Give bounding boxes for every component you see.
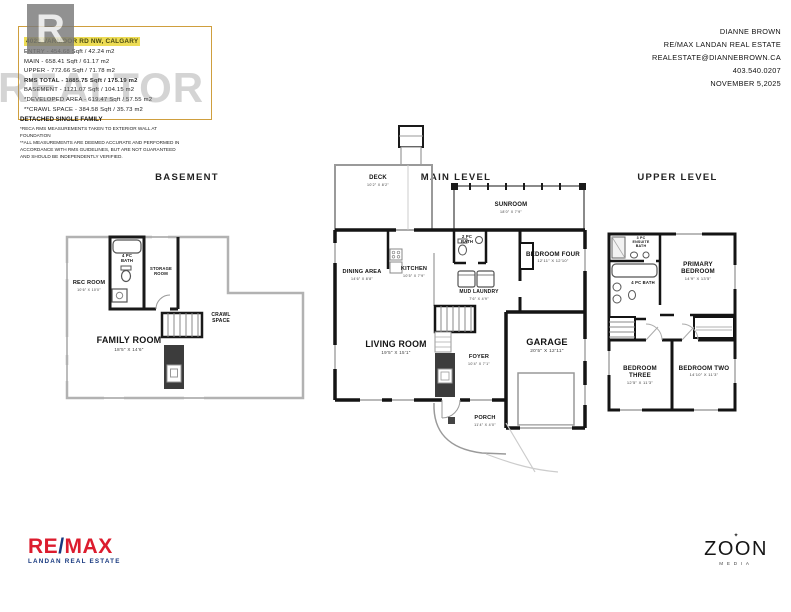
closet-icon	[694, 317, 734, 338]
zoon-wordmark: ZOON	[704, 539, 768, 560]
flyer-date: NOVEMBER 5,2025	[652, 77, 781, 90]
room-label-bedroom-three: BEDROOM THREE 12'5" X 11'3"	[612, 365, 668, 385]
room-label-sunroom: SUNROOM 18'0" X 7'9"	[478, 202, 544, 214]
room-label-family-room: FAMILY ROOM 18'5" X 14'6"	[74, 335, 184, 352]
stairs-icon	[162, 313, 202, 337]
disclaimer-2: **ALL MEASUREMENTS ARE DEEMED ACCURATE A…	[20, 140, 185, 160]
washer-icon	[458, 271, 475, 287]
porch-post	[448, 417, 455, 424]
bathtub-icon	[612, 264, 657, 277]
agent-email: REALESTATE@DIANNEBROWN.CA	[652, 51, 781, 64]
room-label-bedroom-two: BEDROOM TWO 14'10" X 11'3"	[676, 365, 732, 378]
room-label-primary-bedroom: PRIMARY BEDROOM 14'9" X 13'5"	[666, 261, 730, 281]
remax-brokerage-label: LANDAN REAL ESTATE	[28, 558, 121, 565]
room-label-rec-room: REC ROOM 10'6" X 10'0"	[64, 280, 114, 292]
stove-icon	[390, 249, 402, 260]
room-label-mud-laundry: MUD LAUNDRY 7'6" X 4'9"	[456, 290, 502, 301]
porch-outline	[434, 403, 506, 454]
toilet-icon	[631, 252, 638, 258]
zoon-sub-label: MEDIA	[704, 561, 768, 566]
room-label-garage: GARAGE 20'5" X 12'11"	[512, 337, 582, 355]
room-label-porch: PORCH 11'4" X 4'0"	[460, 415, 510, 427]
front-door-arc	[442, 400, 460, 418]
bathtub-icon	[113, 240, 141, 253]
realtor-watermark: REALTOR	[0, 64, 204, 112]
property-type: DETACHED SINGLE FAMILY	[20, 116, 103, 123]
room-label-upper-bath: 4 PC BATH	[631, 281, 655, 286]
zoon-logo: ✦ ZOON MEDIA	[704, 534, 768, 566]
chimney-icon	[399, 126, 423, 165]
room-label-basement-bath: 4 PC BATH	[116, 254, 138, 264]
section-title-upper: UPPER LEVEL	[630, 172, 725, 183]
remax-wordmark: RE/MAX	[28, 536, 121, 557]
room-label-ensuite: 3 PC ENSUITE BATH	[628, 236, 654, 249]
toilet-icon	[629, 291, 636, 300]
fireplace-icon	[435, 353, 455, 397]
room-label-2pc-bath: 2 PC BATH	[457, 235, 477, 245]
sink-icon	[643, 252, 649, 258]
agent-phone: 403.540.0207	[652, 64, 781, 77]
agent-brokerage: RE/MAX LANDAN REAL ESTATE	[652, 38, 781, 51]
realtor-logo-icon: R	[27, 4, 74, 54]
garage-door	[518, 373, 574, 425]
realtor-logo-letter: R	[36, 9, 65, 49]
disclaimer-1: *RECA RMS MEASUREMENTS TAKEN TO EXTERIOR…	[20, 126, 185, 140]
remax-logo: RE/MAX LANDAN REAL ESTATE	[28, 536, 121, 565]
agent-name: DIANNE BROWN	[652, 25, 781, 38]
room-label-deck: DECK 10'2" X 8'2"	[348, 175, 408, 187]
upper-level-floorplan	[606, 231, 738, 413]
room-label-storage: STORAGE ROOM	[147, 267, 175, 277]
room-label-living-room: LIVING ROOM 19'5" X 15'1"	[344, 339, 448, 356]
main-level-plan: DECK 10'2" X 8'2" SUNROOM 18'0" X 7'9" 2…	[330, 123, 590, 475]
room-label-dining-area: DINING AREA 14'6" X 8'8"	[336, 269, 388, 281]
room-label-foyer: FOYER 10'4" X 7'1"	[458, 354, 500, 366]
room-label-crawl-space: CRAWL SPACE	[206, 313, 236, 325]
toilet-icon	[121, 266, 131, 282]
upper-level-plan: 3 PC ENSUITE BATH 4 PC BATH PRIMARY BEDR…	[606, 231, 738, 413]
room-label-bedroom-four: BEDROOM FOUR 12'11" X 12'10"	[524, 251, 582, 264]
section-title-basement: BASEMENT	[142, 172, 232, 183]
sink-icon	[112, 289, 127, 302]
stairs-icon	[609, 317, 635, 340]
room-label-kitchen: KITCHEN 10'5" X 7'9"	[394, 266, 434, 278]
agent-contact-block: DIANNE BROWN RE/MAX LANDAN REAL ESTATE R…	[652, 25, 781, 90]
basement-plan: REC ROOM 10'6" X 10'0" 4 PC BATH STORAGE…	[64, 233, 306, 401]
dryer-icon	[477, 271, 494, 287]
basement-floorplan	[64, 233, 306, 401]
floorplan-flyer: R REALTOR 4023 VARMOOR RD NW, CALGARY EN…	[0, 0, 791, 612]
shower-icon	[612, 237, 625, 258]
